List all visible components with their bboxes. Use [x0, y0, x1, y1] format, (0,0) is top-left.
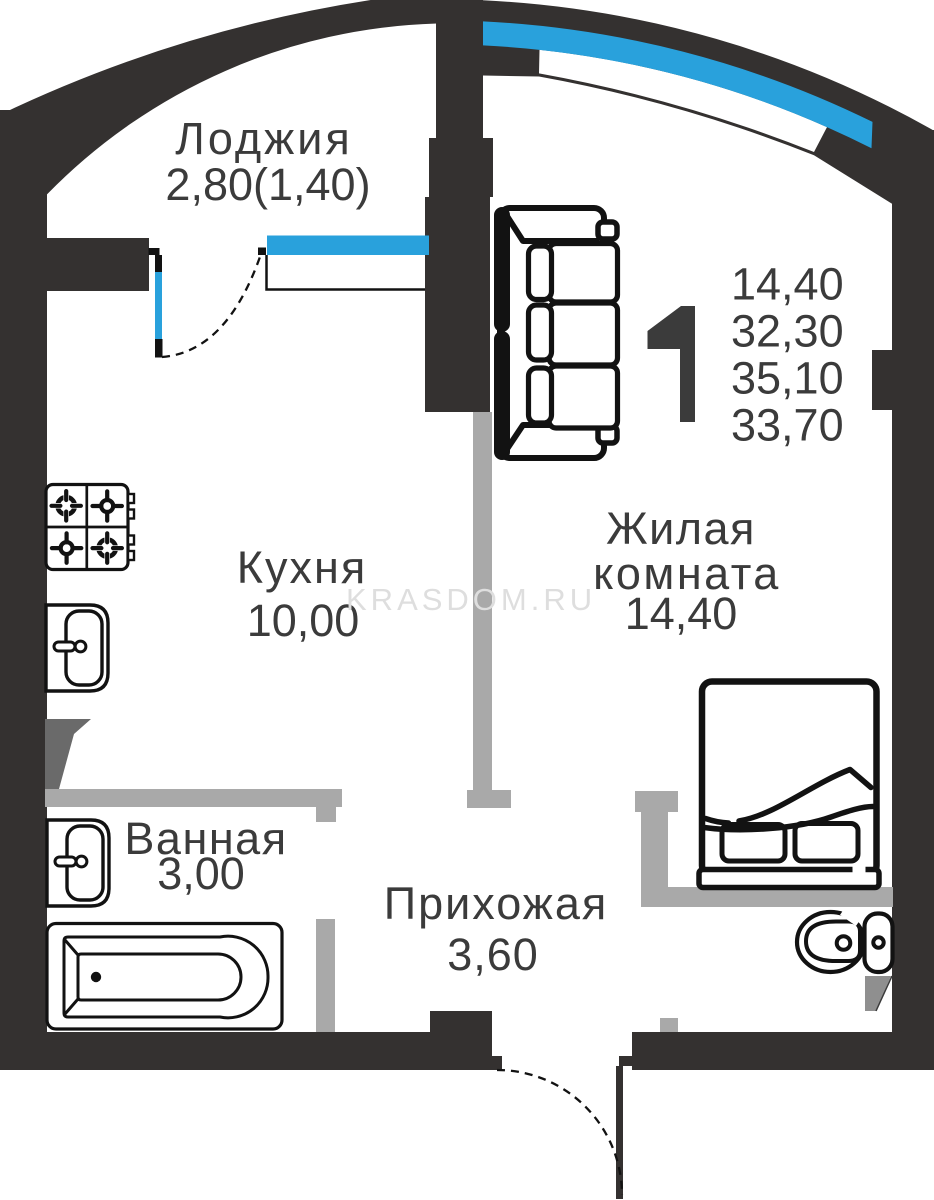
svg-text:3,60: 3,60	[447, 929, 539, 980]
svg-text:3,00: 3,00	[157, 848, 245, 899]
svg-text:14,40: 14,40	[625, 588, 738, 639]
svg-text:33,70: 33,70	[731, 400, 844, 451]
svg-text:2,80(1,40): 2,80(1,40)	[165, 159, 370, 210]
svg-text:KRASDOM.RU: KRASDOM.RU	[346, 582, 596, 617]
svg-text:14,40: 14,40	[731, 259, 844, 310]
svg-text:32,30: 32,30	[731, 306, 844, 357]
svg-text:Лоджия: Лоджия	[175, 113, 352, 164]
svg-text:35,10: 35,10	[731, 353, 844, 404]
svg-text:Жилая: Жилая	[606, 503, 756, 554]
svg-text:10,00: 10,00	[247, 595, 360, 646]
svg-text:Прихожая: Прихожая	[384, 878, 609, 929]
